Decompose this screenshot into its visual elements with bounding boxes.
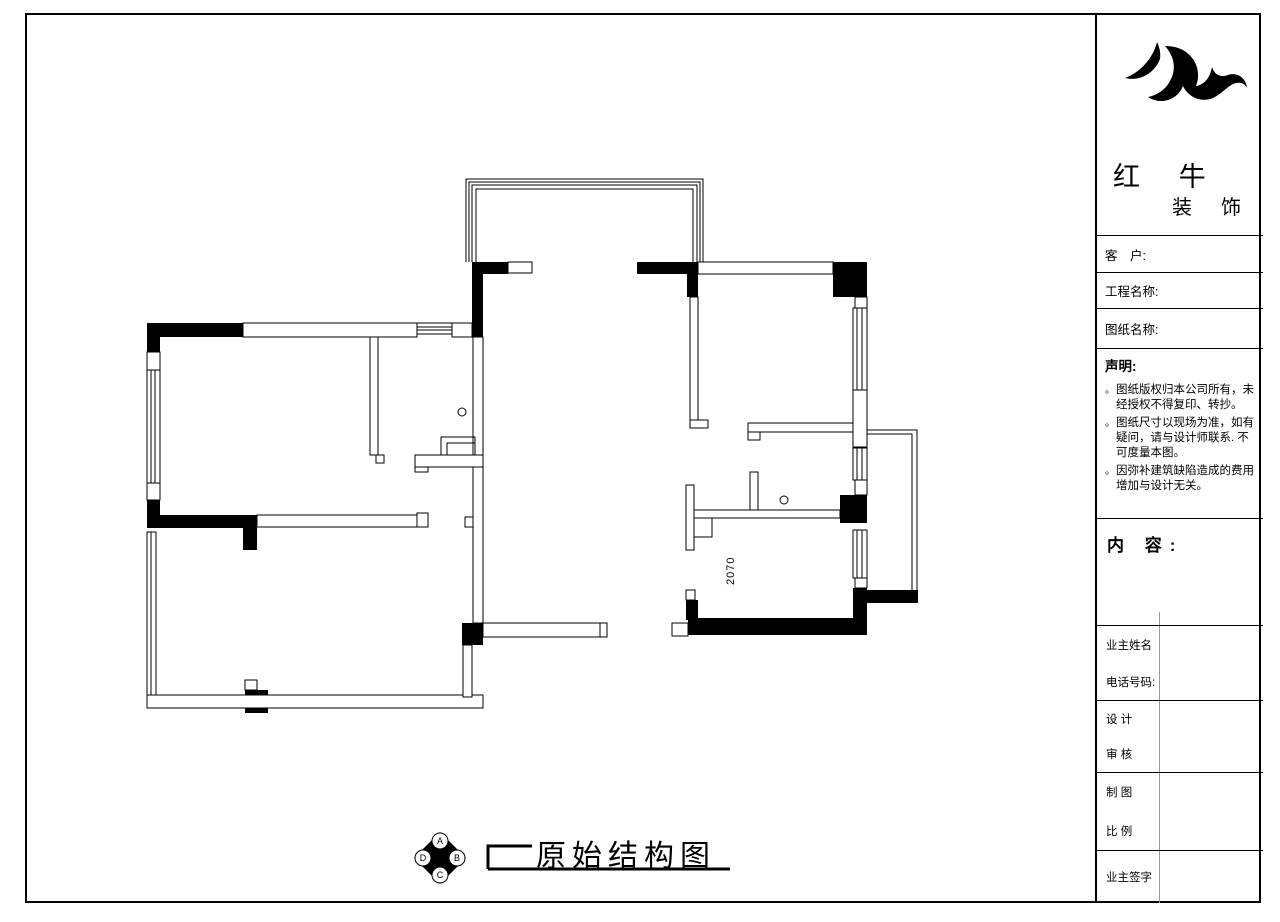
project-name-field: 工程名称: xyxy=(1097,272,1263,308)
design-review-row: 设 计 审 核 xyxy=(1097,700,1263,772)
statement-item: 。 图纸尺寸以现场为准，如有疑问，请与设计师联系. 不可度量本图。 xyxy=(1105,416,1259,461)
bullet-icon: 。 xyxy=(1105,464,1116,494)
drawing-title: 原始结构图 xyxy=(536,831,716,875)
drain-symbol-bathroom xyxy=(458,408,466,416)
review-label: 审 核 xyxy=(1106,746,1263,762)
owner-signature-row: 业主签字 xyxy=(1097,850,1263,903)
content-label: 内 容: xyxy=(1107,536,1183,555)
dimension-label: 2070 xyxy=(725,557,737,585)
phone-label: 电话号码: xyxy=(1106,674,1263,690)
title-block: 红 牛 装 饰 客 户: 工程名称: 图纸名称: 声明: 。 图纸版权归本公司所… xyxy=(1095,13,1263,903)
svg-text:A: A xyxy=(437,836,443,846)
bullet-icon: 。 xyxy=(1105,416,1116,461)
svg-text:D: D xyxy=(420,853,427,863)
bullet-icon: 。 xyxy=(1105,383,1116,413)
content-section: 内 容: xyxy=(1097,518,1263,625)
draft-label: 制 图 xyxy=(1106,784,1263,800)
drawing-name-field: 图纸名称: xyxy=(1097,308,1263,348)
company-name-main: 红 牛 xyxy=(1113,155,1222,194)
balcony-outline xyxy=(867,430,917,592)
statement-item: 。 图纸版权归本公司所有，未经授权不得复印、转抄。 xyxy=(1105,383,1259,413)
cad-sheet: 2070 A B C D 原始结构图 红 牛 装 饰 xyxy=(0,0,1280,922)
bay-window-top xyxy=(466,179,703,262)
bathroom-counter xyxy=(441,437,475,455)
scale-label: 比 例 xyxy=(1106,823,1263,839)
drain-symbol-bedroom xyxy=(780,496,788,504)
hollow-walls xyxy=(147,262,867,708)
customer-label: 客 户: xyxy=(1105,245,1146,264)
north-indicator: A B C D xyxy=(414,832,466,884)
draft-scale-row: 制 图 比 例 xyxy=(1097,772,1263,850)
owner-sign-label: 业主签字 xyxy=(1106,869,1152,885)
owner-info-row: 业主姓名 电话号码: xyxy=(1097,625,1263,700)
company-logo-box: 红 牛 装 饰 xyxy=(1097,13,1263,235)
company-name-sub: 装 饰 xyxy=(1172,191,1253,220)
design-label: 设 计 xyxy=(1106,711,1263,727)
bull-swoosh-logo-icon xyxy=(1111,31,1251,141)
statement-section: 声明: 。 图纸版权归本公司所有，未经授权不得复印、转抄。 。 图纸尺寸以现场为… xyxy=(1097,348,1263,518)
drawing-name-label: 图纸名称: xyxy=(1105,319,1158,338)
statement-item: 。 因弥补建筑缺陷造成的费用增加与设计无关。 xyxy=(1105,464,1259,494)
svg-text:C: C xyxy=(437,870,444,880)
owner-name-label: 业主姓名 xyxy=(1106,637,1263,653)
project-name-label: 工程名称: xyxy=(1105,281,1158,300)
svg-text:B: B xyxy=(454,853,460,863)
statement-heading: 声明: xyxy=(1105,355,1259,375)
customer-field: 客 户: xyxy=(1097,235,1263,272)
floor-plan-svg: 2070 A B C D xyxy=(0,0,1280,922)
